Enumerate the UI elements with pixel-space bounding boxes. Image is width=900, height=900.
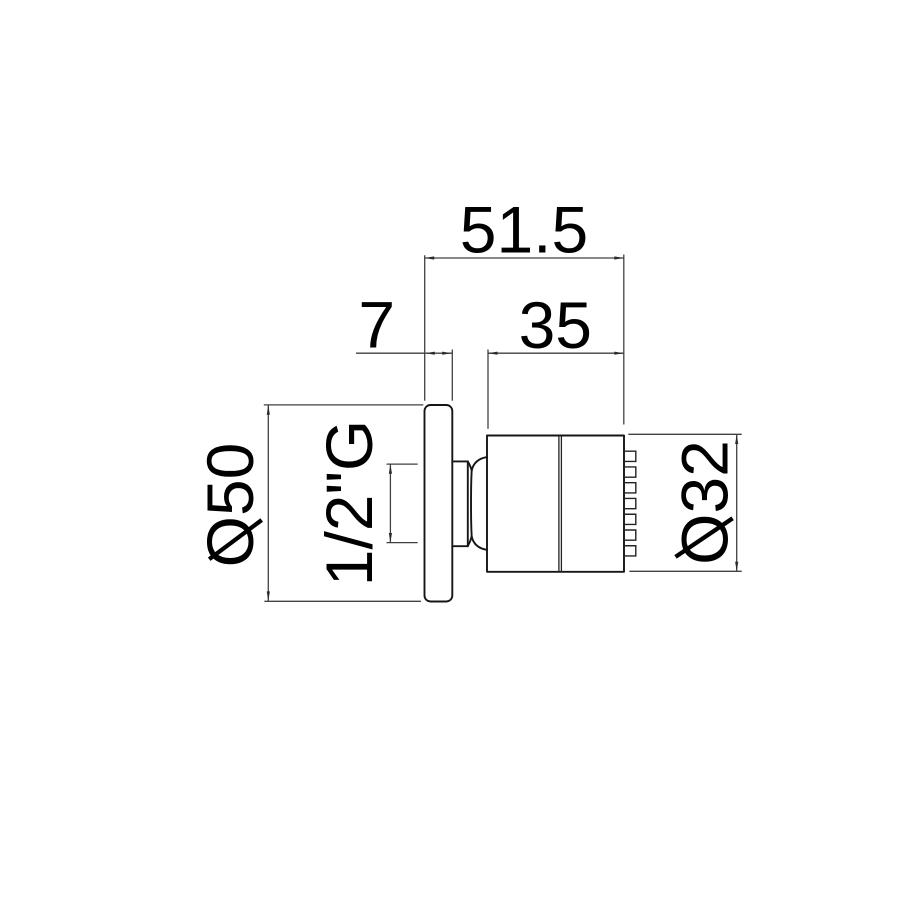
svg-text:51.5: 51.5 [460,193,588,267]
svg-text:O50: O50 [193,443,267,568]
svg-text:35: 35 [519,288,592,362]
svg-text:1/2"G: 1/2"G [312,420,386,587]
svg-text:O32: O32 [668,440,742,565]
svg-text:7: 7 [358,288,395,362]
